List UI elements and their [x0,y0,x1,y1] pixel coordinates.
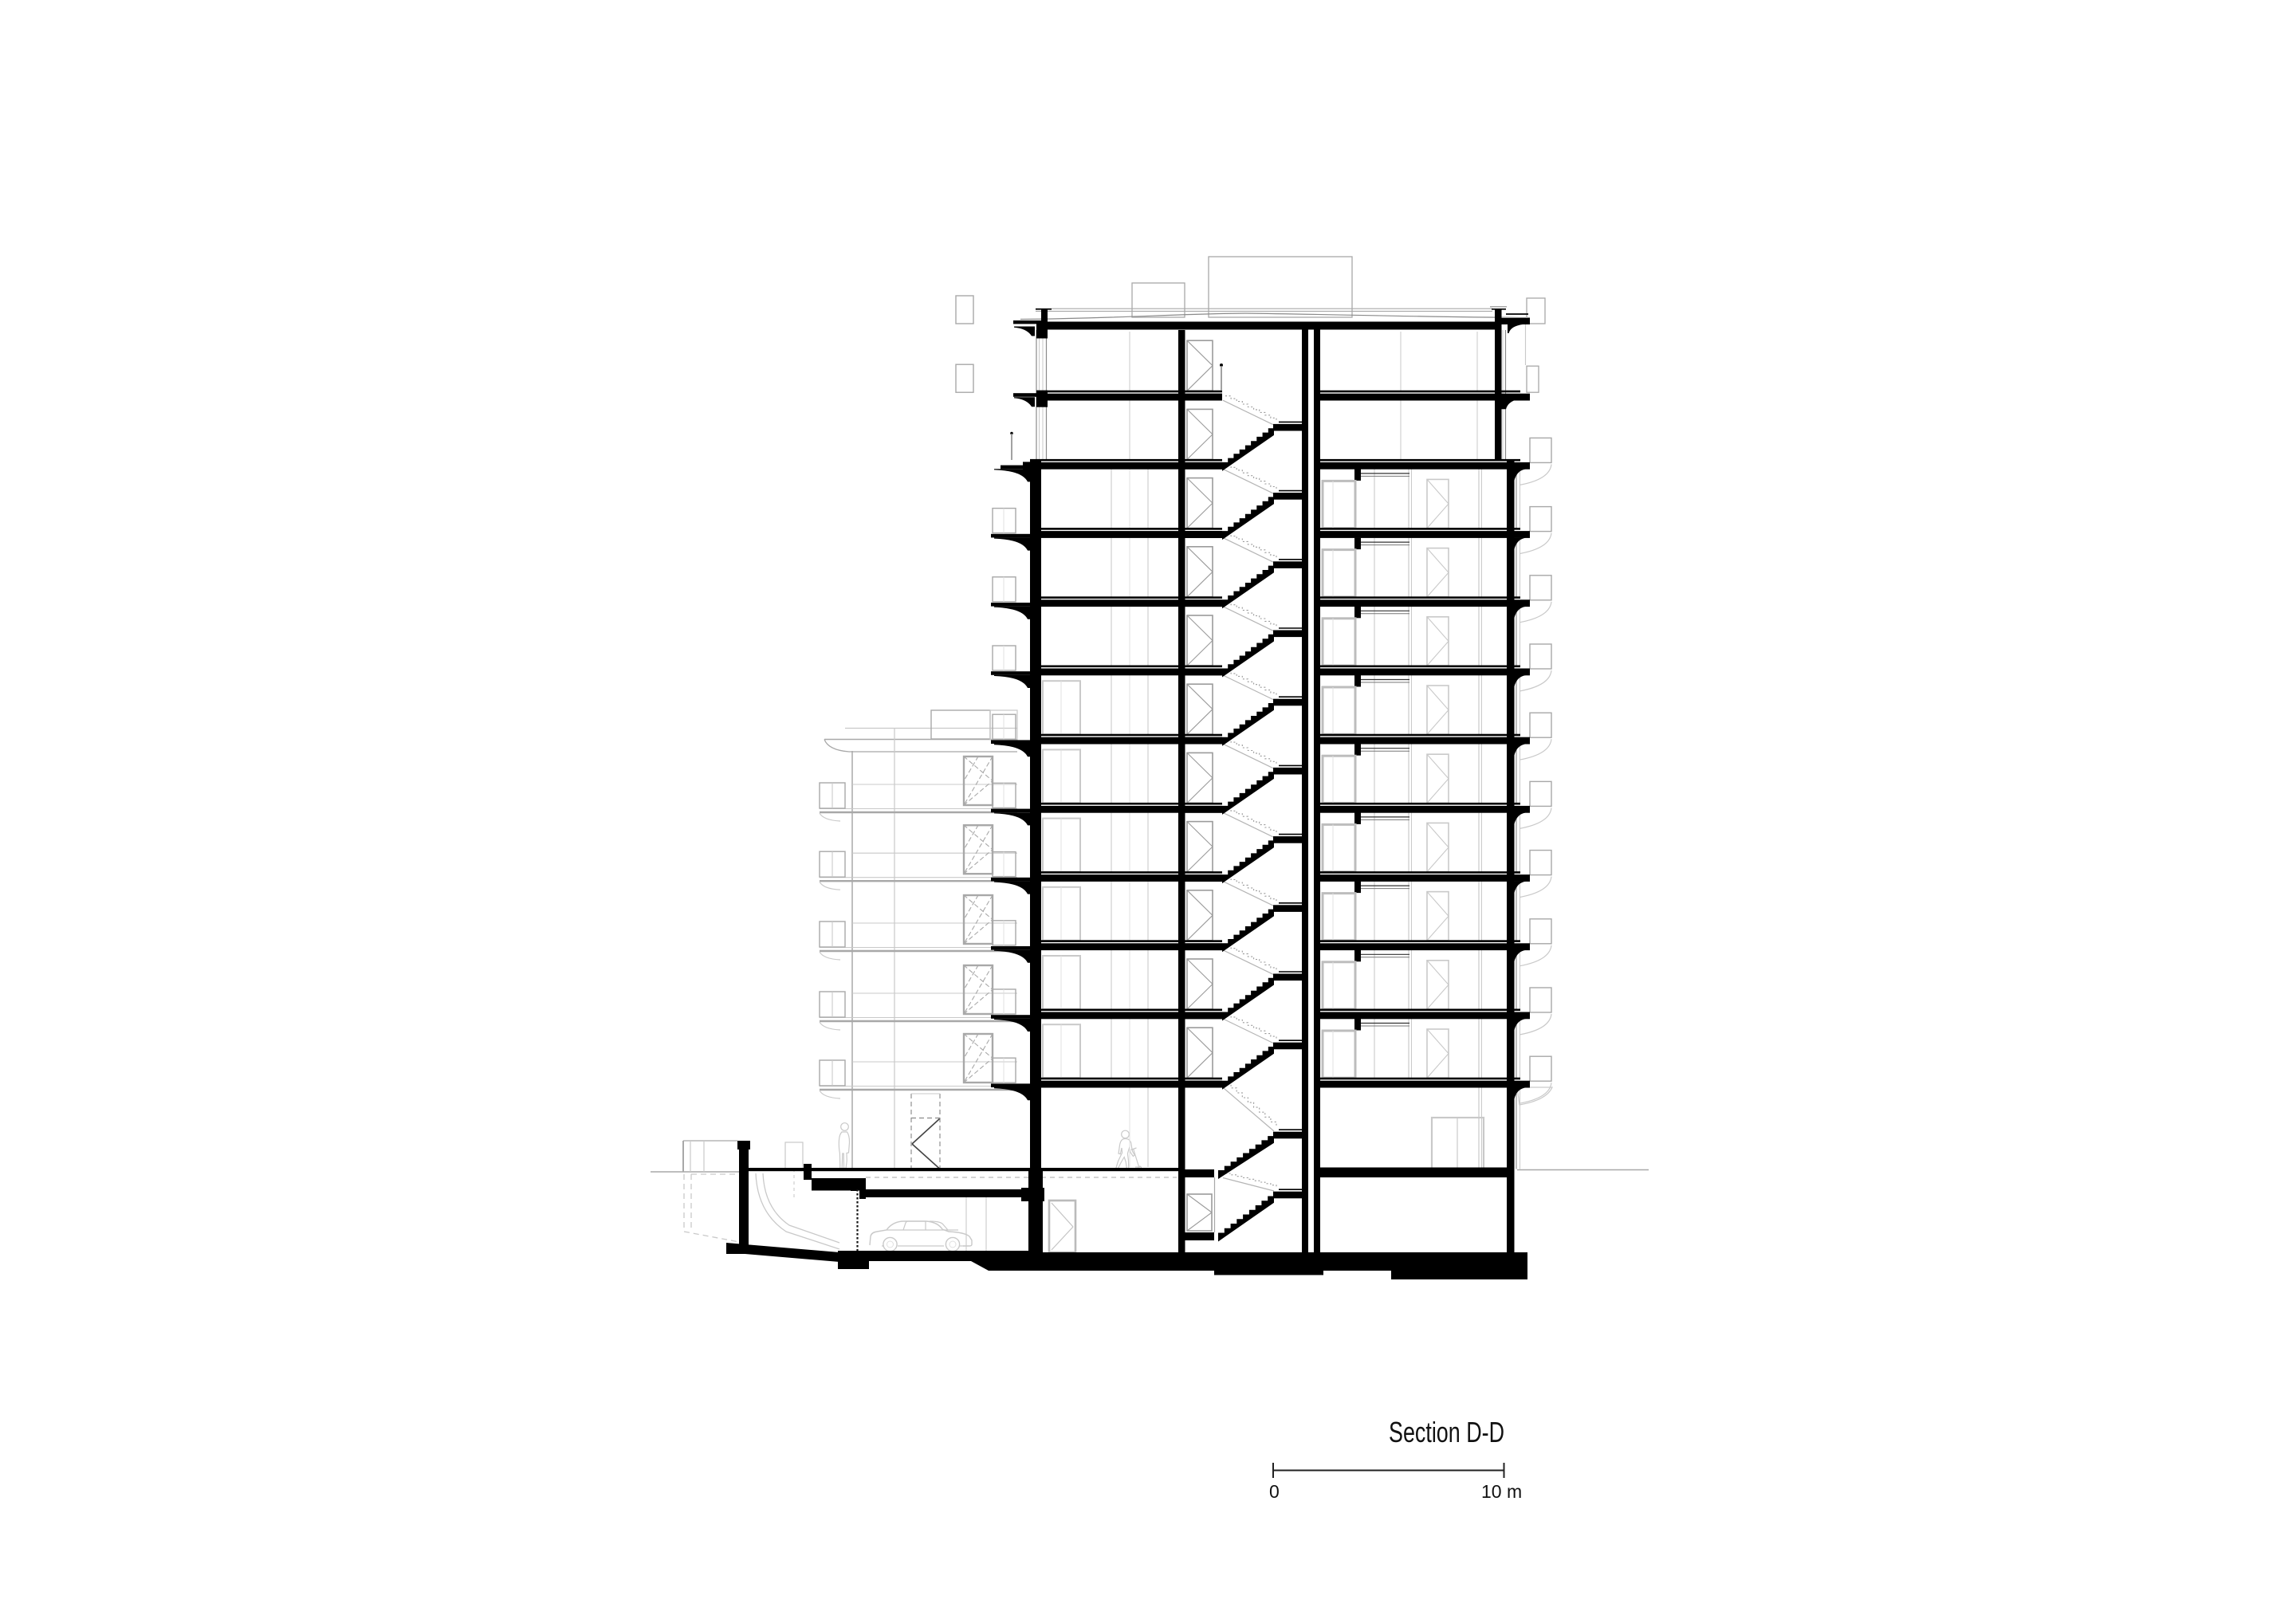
svg-text:10 m: 10 m [1481,1481,1522,1502]
svg-text:Section D-D: Section D-D [1389,1416,1504,1448]
svg-text:0: 0 [1269,1481,1280,1502]
